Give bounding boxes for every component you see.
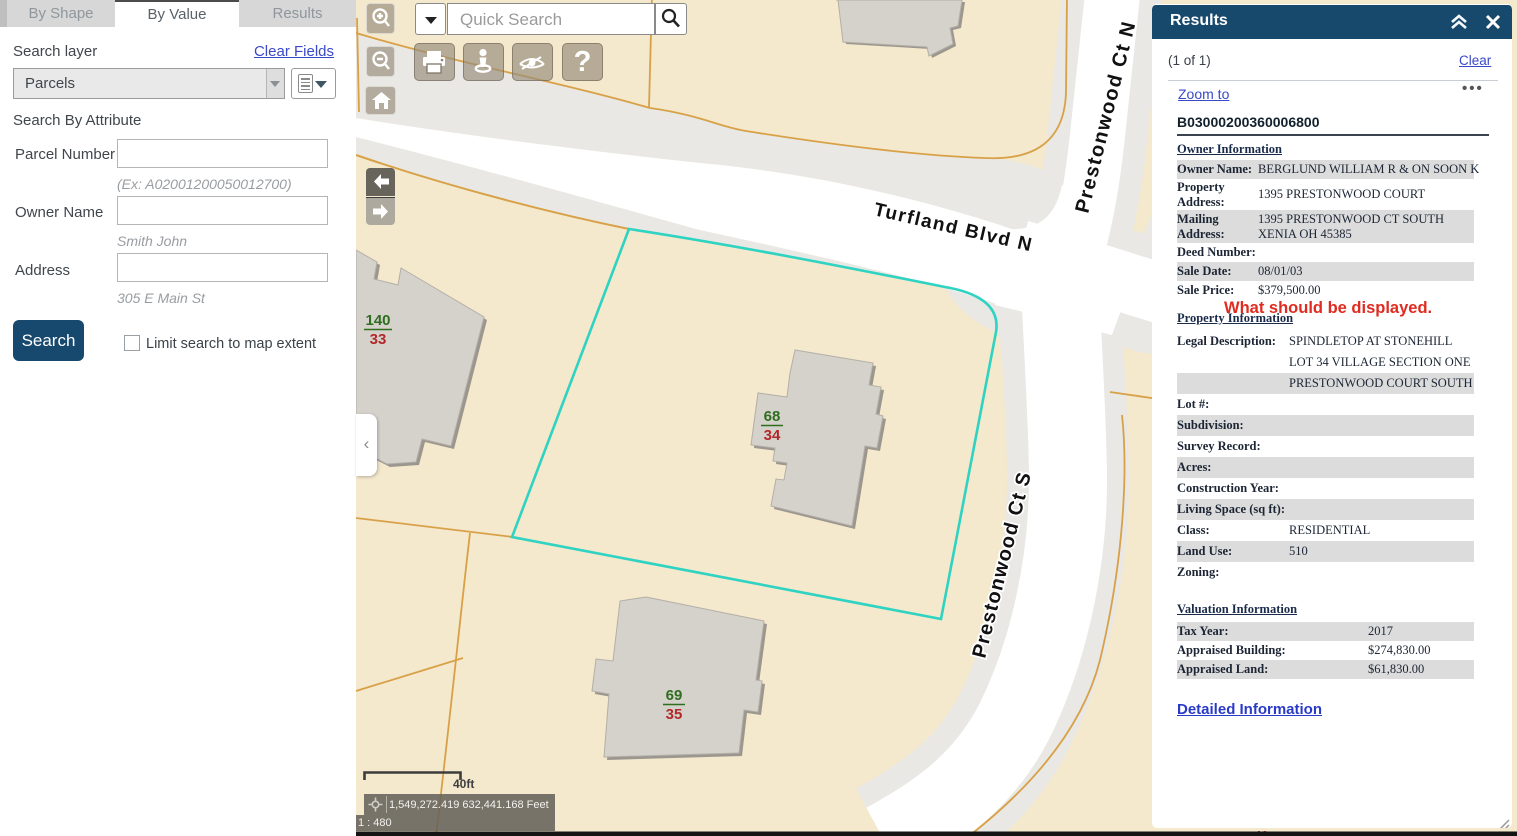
svg-text:34: 34 [764,427,781,444]
svg-text:33: 33 [370,331,387,348]
svg-text:69: 69 [666,687,683,704]
svg-text:40ft: 40ft [453,777,474,791]
svg-text:68: 68 [764,408,781,425]
svg-text:140: 140 [365,312,390,329]
svg-text:35: 35 [666,706,683,723]
